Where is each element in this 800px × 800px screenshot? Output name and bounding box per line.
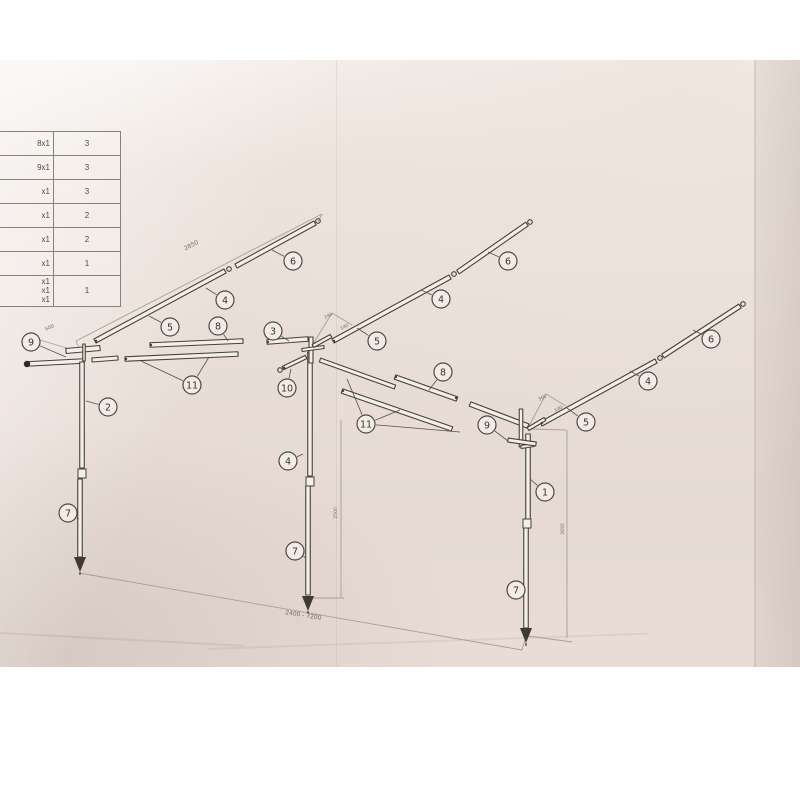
pole [235,221,316,268]
callout-number: 4 [645,376,651,387]
callout-leader [289,369,291,378]
callout-leader [86,401,98,404]
pole-pin [24,361,30,367]
callout-4: 4 [206,288,234,309]
callout-6: 6 [272,250,302,270]
callout-leader [495,431,508,441]
pole [92,356,118,362]
dimension-line [546,394,566,406]
callout-8: 8 [429,363,452,390]
callout-number: 9 [484,420,490,431]
callout-number: 7 [292,546,298,557]
pole-clamp [306,477,314,486]
dimension-label: 2400 - 7200 [285,609,322,622]
frame-drawing: 28505002401403601402400 - 720025002650 6… [0,0,800,800]
callout-number: 8 [215,321,221,332]
callout-leader [357,328,369,336]
dimension-label: 500 [44,323,55,332]
pole [308,352,313,476]
pole [319,358,395,389]
frame-poles [26,221,741,628]
callout-number: 5 [583,417,589,428]
pole-hook [452,272,457,277]
callout-leader [149,316,161,322]
callout-leader [206,288,217,295]
callout-4: 4 [279,452,303,470]
pole [332,275,451,343]
callout-leader [297,454,303,457]
callout-5: 5 [357,328,386,350]
callout-7: 7 [507,581,525,599]
callout-number: 11 [186,380,198,391]
dimension-label: 2500 [333,507,339,519]
callout-leader [141,361,183,381]
dimension-line [528,636,572,642]
pole-pin [541,422,543,424]
callout-9: 9 [22,333,66,357]
dimension-line [76,214,322,341]
dimension-label: 2850 [183,239,200,252]
callout-leader [272,250,284,256]
pole [26,359,84,366]
pole [524,527,529,628]
callout-number: 2 [105,402,111,413]
callout-6: 6 [488,252,517,270]
callout-number: 1 [542,487,548,498]
dimension-label: 360 [537,393,547,402]
pole-pin [395,376,397,378]
callout-number: 7 [513,585,519,596]
pole-pin [342,390,344,392]
callout-8: 8 [209,317,228,341]
pole [78,479,83,557]
pole-pin [283,367,286,370]
callout-10: 10 [278,369,296,397]
callout-number: 8 [440,367,446,378]
callout-2: 2 [86,398,117,416]
callout-leader [197,357,209,376]
pole-hook [658,356,663,361]
callout-number: 6 [505,256,511,267]
callout-leader [488,252,499,257]
callout-number: 4 [438,294,444,305]
callout-7: 7 [59,504,79,522]
callout-number: 6 [708,334,714,345]
pole-pin [150,344,152,346]
callout-5: 5 [567,408,595,431]
pole-pin [125,358,127,360]
pole [282,355,307,369]
pole-pin [267,341,269,343]
callout-11: 11 [141,357,209,394]
pole-pin [455,397,457,399]
callout-leader [530,479,537,485]
callout-9: 9 [478,416,508,441]
callout-7: 7 [286,542,306,560]
pole [125,352,238,361]
dimension-line [531,429,566,430]
pole-hook [528,220,533,225]
callout-number: 5 [167,322,173,333]
callout-number: 3 [270,326,276,337]
pole-clamp [78,469,86,478]
callout-leader [40,346,66,357]
leg-foot [74,557,86,572]
dimension-line [332,313,352,325]
pole-hook [227,267,232,272]
pole [83,344,86,361]
callout-number: 10 [281,383,293,394]
pole [662,304,741,358]
callout-number: 11 [360,419,372,430]
pole [80,362,85,468]
pole [306,486,311,595]
pole [457,222,529,274]
pole-clamp [523,519,531,528]
pole-hook [278,368,283,373]
pole [150,339,243,347]
callout-leader [375,410,400,420]
callout-number: 5 [374,336,380,347]
leg-foot [520,628,532,643]
pole-hook [741,302,746,307]
callouts: 64583927111064581147917645 [22,250,720,599]
pole [94,269,226,343]
pole-pin [333,340,335,342]
callout-5: 5 [149,316,179,336]
screenshot-root: { "photo": { "paper_color": "#e9ded7", "… [0,0,800,800]
dimension-label: 2650 [560,523,566,535]
callout-number: 7 [65,508,71,519]
leg-foot [302,596,314,611]
callout-number: 4 [222,295,228,306]
callout-1: 1 [530,479,554,501]
callout-number: 4 [285,456,291,467]
pole [540,359,657,426]
callout-number: 6 [290,256,296,267]
pole-pin [95,340,97,342]
callout-number: 9 [28,337,34,348]
